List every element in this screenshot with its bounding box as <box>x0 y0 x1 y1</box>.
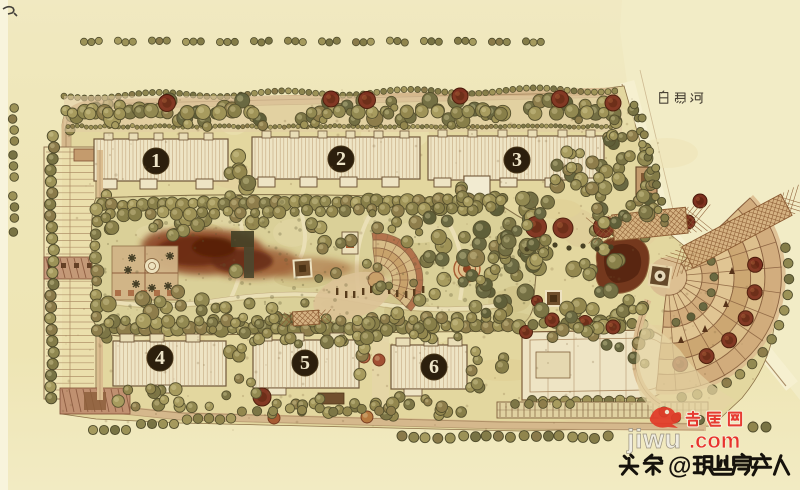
svg-text:@: @ <box>668 453 691 480</box>
svg-text:.com: .com <box>689 428 740 453</box>
svg-text:jiwu: jiwu <box>626 424 682 454</box>
